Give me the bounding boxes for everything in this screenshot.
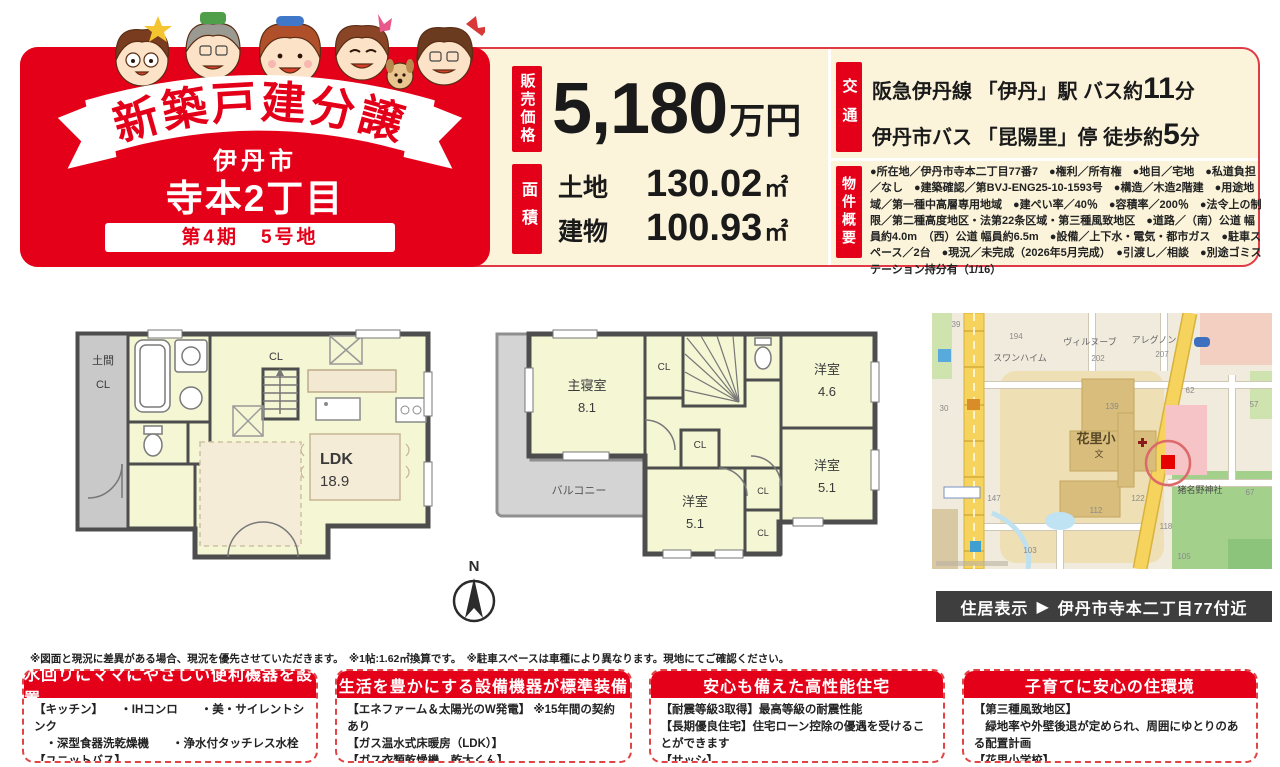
map-school-symbol: 文 (1094, 448, 1103, 459)
building-area-unit: ㎡ (764, 212, 788, 247)
feature-box-body: 【キッチン】 ・IHコンロ ・美・サイレントシンク ・深型食器洗乾燥機 ・浄水付… (24, 698, 316, 763)
map-label-swanheim: スワンハイム (993, 353, 1047, 363)
overview-label: 物件概要 (836, 166, 862, 258)
balcony-label: バルコニー (552, 484, 607, 497)
map-number: 57 (1250, 400, 1259, 409)
feature-boxes: 水回りにママにやさしい便利機器を設置 【キッチン】 ・IHコンロ ・美・サイレン… (22, 669, 1258, 763)
building-area-row: 建物 100.93 ㎡ (558, 207, 838, 250)
map-number: 112 (1090, 506, 1103, 515)
room-c-size: 5.1 (686, 516, 704, 531)
doma-cl-label: CL (96, 379, 110, 391)
feature-line: 【エネファーム＆太陽光のW発電】 ※15年間の契約あり (347, 702, 619, 736)
ldk-size: 18.9 (320, 473, 349, 490)
feature-line: 【キッチン】 ・IHコンロ ・美・サイレントシンク (34, 702, 306, 736)
map-label-alegnon: アレグノン (1132, 334, 1177, 345)
address-bar-prefix: 住居表示 (960, 595, 1028, 619)
disclaimer-text: ※図面と現況に差異がある場合、現況を優先させていただきます。 ※1帖:1.62㎡… (30, 651, 1255, 666)
district-name: 寺本2丁目 (20, 168, 490, 222)
price-amount: 5,180 (552, 68, 727, 150)
area-label: 面積 (512, 164, 542, 254)
land-area-unit: ㎡ (764, 168, 788, 203)
feature-line: 【ガス温水式床暖房（LDK）】 (347, 736, 619, 753)
access-line-1-suffix: 分 (1175, 75, 1195, 104)
ldk-label: LDK (320, 451, 353, 468)
map-number: 62 (1186, 386, 1195, 395)
map-number: 194 (1009, 332, 1023, 341)
washer-icon (180, 387, 202, 409)
map-number: 39 (952, 320, 961, 329)
header-divider-horizontal (831, 158, 1258, 161)
map-number: 147 (987, 494, 1001, 503)
room-a-size: 4.6 (818, 384, 836, 399)
access-line-2-text: 伊丹市バス 「昆陽里」停 徒歩約 (872, 121, 1163, 150)
access-line-2-minutes: 5 (1163, 118, 1180, 152)
feature-box-body: 【エネファーム＆太陽光のW発電】 ※15年間の契約あり【ガス温水式床暖房（LDK… (337, 698, 629, 763)
property-marker (1161, 455, 1175, 469)
feature-line: 【ユニットバス】 (34, 753, 306, 763)
access-line-1: 阪急伊丹線 「伊丹」駅 バス約11分 (872, 72, 1267, 106)
feature-line: 【ガス衣類乾燥機 乾太くん】 (347, 753, 619, 763)
price-unit: 万円 (729, 92, 801, 144)
feature-box-environment: 子育てに安心の住環境 【第三種風致地区】 緑地率や外壁後退が定められ、周囲にゆと… (962, 669, 1258, 763)
access-line-2: 伊丹市バス 「昆陽里」停 徒歩約5分 (872, 118, 1267, 152)
feature-box-title: 子育てに安心の住環境 (964, 671, 1256, 698)
building-area-value: 100.93 (646, 207, 762, 250)
cl-bottom-label: CL (757, 528, 769, 538)
address-bar-address: 伊丹市寺本二丁目77付近 (1058, 595, 1248, 619)
room-b-size: 5.1 (818, 480, 836, 495)
property-overview: ●所在地／伊丹市寺本二丁目77番7 ●権利／所有権 ●地目／宅地 ●私道負担／な… (870, 164, 1262, 262)
feature-box-body: 【第三種風致地区】 緑地率や外壁後退が定められ、周囲にゆとりのある配置計画【花里… (964, 698, 1256, 763)
compass-icon: N (448, 556, 500, 630)
toilet-icon-2f (755, 347, 771, 369)
flyer-page: 新築戸建分譲 伊丹市 寺本2丁目 第4期 5号地 販売価格 5,180 万円 面… (0, 0, 1280, 767)
room-b-label: 洋室 (814, 458, 840, 473)
map-copyright (936, 561, 1008, 566)
feature-line: 【第三種風致地区】 (974, 702, 1246, 719)
price-label: 販売価格 (512, 66, 542, 152)
feature-line: 【長期優良住宅】住宅ローン控除の優遇を受けることができます (661, 719, 933, 753)
location-map: スワンハイム ヴィルヌーブ アレグノン 猪名野神社 花里小 文 39 194 2… (932, 313, 1272, 569)
land-area-row: 土地 130.02 ㎡ (558, 163, 838, 206)
compass-north-label: N (469, 558, 480, 575)
feature-line: 【花里小学校】 (974, 753, 1246, 763)
address-bar-arrow-icon: ▶ (1036, 597, 1049, 617)
doma-label: 土間 (92, 354, 114, 367)
map-number: 30 (940, 404, 949, 413)
feature-box-body: 【耐震等級3取得】最高等級の耐震性能【長期優良住宅】住宅ローン控除の優遇を受ける… (651, 698, 943, 763)
price-value: 5,180 万円 (552, 68, 842, 150)
cl-center-label: CL (694, 440, 707, 451)
room-a-label: 洋室 (814, 362, 840, 377)
map-label-school: 花里小 (1076, 431, 1115, 446)
map-label-villeneuve: ヴィルヌーブ (1063, 336, 1116, 347)
feature-box-title: 安心も備えた高性能住宅 (651, 671, 943, 698)
master-bedroom-label: 主寝室 (567, 378, 606, 393)
cl-top-label: CL (658, 362, 671, 373)
feature-box-performance: 安心も備えた高性能住宅 【耐震等級3取得】最高等級の耐震性能【長期優良住宅】住宅… (649, 669, 945, 763)
cl-right-label: CL (757, 486, 769, 496)
map-number: 105 (1177, 552, 1191, 561)
map-number: 103 (1023, 546, 1037, 555)
map-number: 202 (1091, 354, 1105, 363)
toilet-icon (144, 426, 162, 434)
kitchen-counter (308, 370, 396, 392)
building-area-name: 建物 (558, 212, 646, 248)
route-shield-icon (1194, 337, 1210, 347)
cl-label-1f: CL (269, 351, 283, 363)
map-number: 67 (1246, 488, 1255, 497)
feature-line: ・深型食器洗乾燥機 ・浄水付タッチレス水栓 (34, 736, 306, 753)
room-c-label: 洋室 (682, 494, 708, 509)
feature-line: 【耐震等級3取得】最高等級の耐震性能 (661, 702, 933, 719)
map-number: 207 (1155, 350, 1169, 359)
land-area-value: 130.02 (646, 163, 762, 206)
floorplan-2f: 主寝室 8.1 CL 洋室 4.6 CL 洋室 5.1 洋室 5.1 CL CL… (483, 318, 903, 566)
access-line-1-text: 阪急伊丹線 「伊丹」駅 バス約 (872, 75, 1143, 104)
feature-box-title: 水回りにママにやさしい便利機器を設置 (24, 671, 316, 698)
address-bar: 住居表示 ▶ 伊丹市寺本二丁目77付近 (936, 591, 1272, 622)
map-number: 139 (1105, 402, 1119, 411)
feature-box-equipment: 生活を豊かにする設備機器が標準装備 【エネファーム＆太陽光のW発電】 ※15年間… (335, 669, 631, 763)
map-number: 118 (1160, 522, 1173, 531)
phase-label: 第4期 5号地 (105, 223, 395, 252)
map-label-shrine: 猪名野神社 (1177, 484, 1222, 495)
access-line-2-suffix: 分 (1180, 121, 1200, 150)
master-bedroom-size: 8.1 (578, 400, 596, 415)
feature-box-title: 生活を豊かにする設備機器が標準装備 (337, 671, 629, 698)
floorplan-1f: 土間 CL CL LDK 18.9 (58, 314, 458, 606)
kitchen-sink-icon (316, 398, 360, 420)
access-line-1-minutes: 11 (1143, 72, 1175, 106)
feature-line: 緑地率や外壁後退が定められ、周囲にゆとりのある配置計画 (974, 719, 1246, 753)
map-number: 122 (1131, 494, 1145, 503)
feature-box-water: 水回りにママにやさしい便利機器を設置 【キッチン】 ・IHコンロ ・美・サイレン… (22, 669, 318, 763)
feature-line: 【サッシ】 (661, 753, 933, 763)
land-area-name: 土地 (558, 168, 646, 204)
access-label: 交通 (836, 62, 862, 152)
